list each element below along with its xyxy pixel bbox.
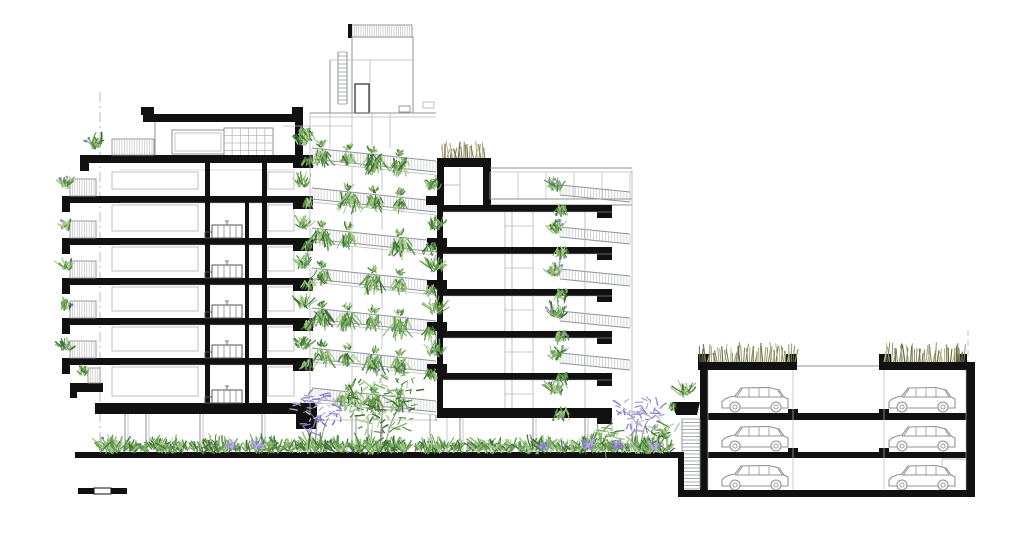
scale-bar: [78, 488, 127, 494]
building-section-drawing: [0, 0, 1024, 541]
section-drawing-svg: [0, 0, 1024, 541]
right-building-section: [426, 158, 632, 452]
ground-line: [75, 452, 975, 497]
